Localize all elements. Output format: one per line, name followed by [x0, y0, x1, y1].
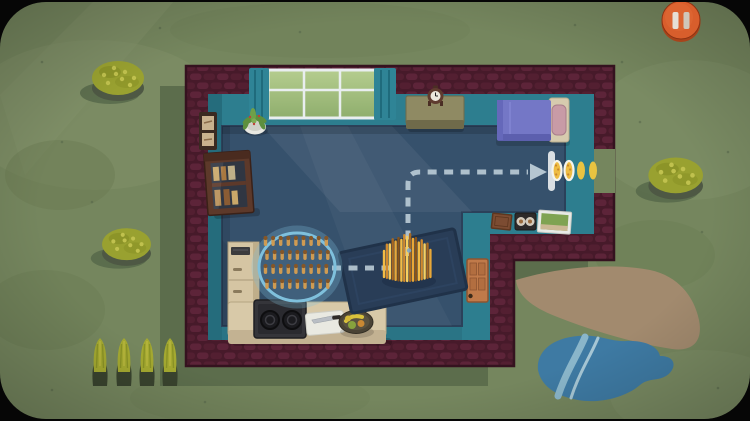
- game-scene-canvas: [0, 0, 750, 421]
- game-screen: [0, 0, 750, 421]
- vignette: [0, 0, 750, 421]
- pause-button[interactable]: [662, 1, 701, 42]
